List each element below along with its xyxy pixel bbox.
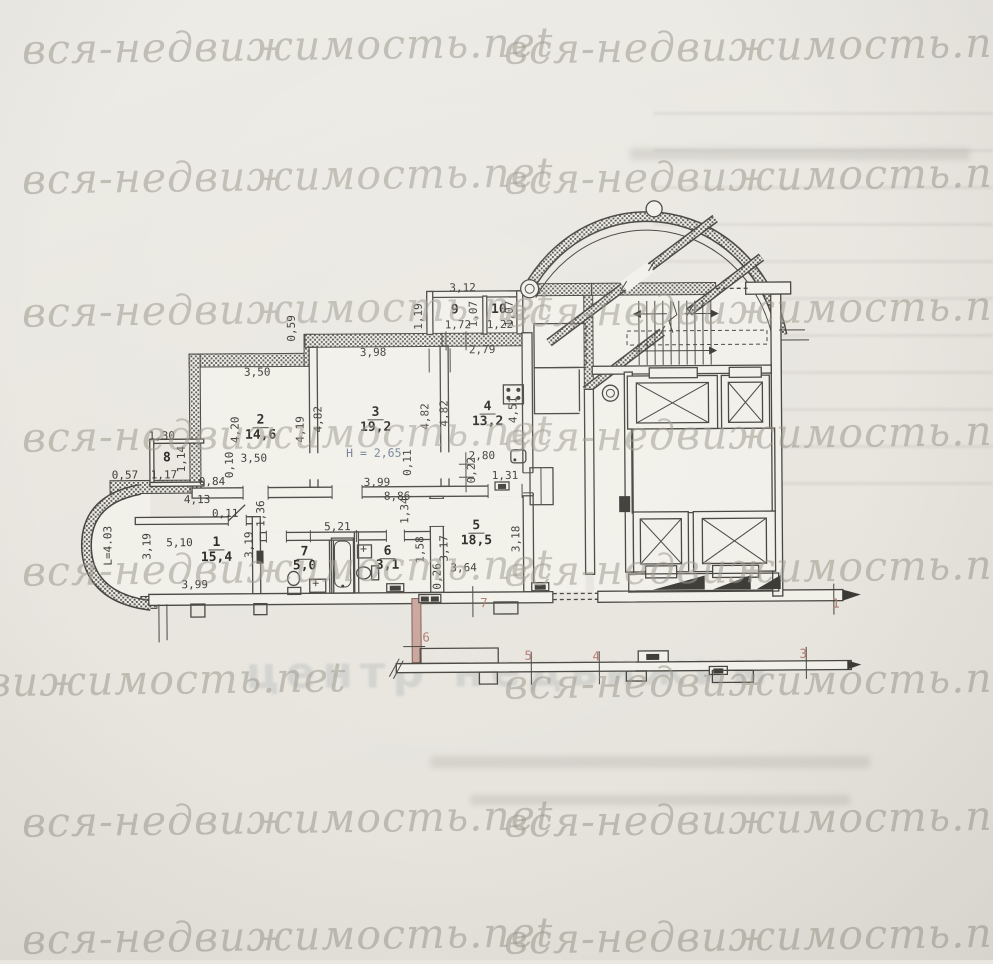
ceiling-height-note: H = 2,65	[346, 446, 401, 460]
dim-label: 3,50	[241, 452, 268, 465]
room-area: 14,6	[245, 428, 277, 443]
room-number: 7	[301, 544, 309, 559]
dim-label: 1,30	[148, 429, 175, 442]
dim-label: 0,26	[431, 563, 444, 590]
dim-label: 3,64	[450, 561, 477, 574]
room-number: 2	[257, 413, 265, 428]
dim-label: 0,84	[199, 475, 226, 488]
dim-label: 4,51	[506, 397, 519, 424]
dim-label: 3,50	[244, 366, 271, 379]
dim-label: 4,20	[229, 417, 242, 444]
dim-label: 5,10	[166, 536, 193, 549]
dim-label: 2,79	[469, 343, 496, 356]
room-number: 8	[163, 450, 171, 465]
dim-label: 4,82	[418, 403, 431, 430]
dim-label: 1,36	[254, 500, 267, 527]
axis-label: 6	[422, 629, 430, 644]
room-number: 4	[484, 399, 492, 414]
room-area: 15,4	[201, 550, 233, 565]
axis-label: 3	[799, 646, 807, 661]
axis-label: 5	[524, 648, 532, 663]
dim-label: 3,12	[449, 281, 476, 294]
dim-label: 0,57	[112, 469, 139, 482]
dim-label: 0,22	[465, 457, 478, 484]
dim-label: 4,82	[311, 406, 324, 433]
room-area: 13,2	[472, 414, 503, 429]
dim-label: L=4.03	[101, 526, 114, 566]
axis-label: 4	[592, 648, 600, 663]
axis-label: 7	[480, 595, 488, 610]
dim-label: 4,13	[184, 493, 211, 506]
dim-label: 3,17	[437, 535, 450, 562]
room-number: 9	[451, 302, 459, 317]
room-number: 10	[491, 302, 507, 317]
dim-label: 3,19	[140, 533, 153, 560]
room-area: 5,0	[293, 558, 317, 573]
dim-label: 3,18	[509, 526, 522, 553]
dim-label: 3,99	[181, 578, 208, 591]
dim-label: 3,19	[242, 531, 255, 558]
dim-label: 1,14	[175, 446, 188, 473]
room-area: 19,2	[360, 420, 391, 435]
floor-plan: 3,12 1,72 1,22 2,79 3,98 3,50 1,30 0,57 …	[0, 0, 993, 963]
room-number: 5	[472, 518, 480, 533]
dim-label: 1,58	[413, 536, 426, 563]
room-area: 18,5	[461, 533, 492, 548]
dim-label: 1,17	[151, 468, 178, 481]
dim-label: 1,19	[412, 303, 425, 330]
dim-label: 1,34	[398, 497, 411, 524]
dim-label: 1,31	[492, 469, 519, 482]
dim-label: 4,19	[294, 416, 307, 443]
axis-label: 1	[832, 596, 840, 611]
dim-label: 1,07	[467, 301, 480, 328]
dim-label: 3,98	[360, 346, 387, 359]
room-number: 3	[372, 405, 380, 420]
dim-label: 0,11	[401, 449, 414, 476]
dim-label: 3,99	[364, 476, 391, 489]
scanned-page: центр недвижим	[0, 0, 993, 960]
room-number: 6	[384, 544, 392, 559]
room-number: 1	[212, 535, 220, 550]
dim-label: 0,59	[285, 315, 298, 342]
dim-label: 0,11	[212, 507, 239, 520]
dim-label: 4,82	[437, 400, 450, 427]
dim-label: 5,21	[324, 520, 351, 533]
room-area: 3,1	[376, 558, 400, 573]
dim-label: 0,10	[223, 452, 236, 479]
